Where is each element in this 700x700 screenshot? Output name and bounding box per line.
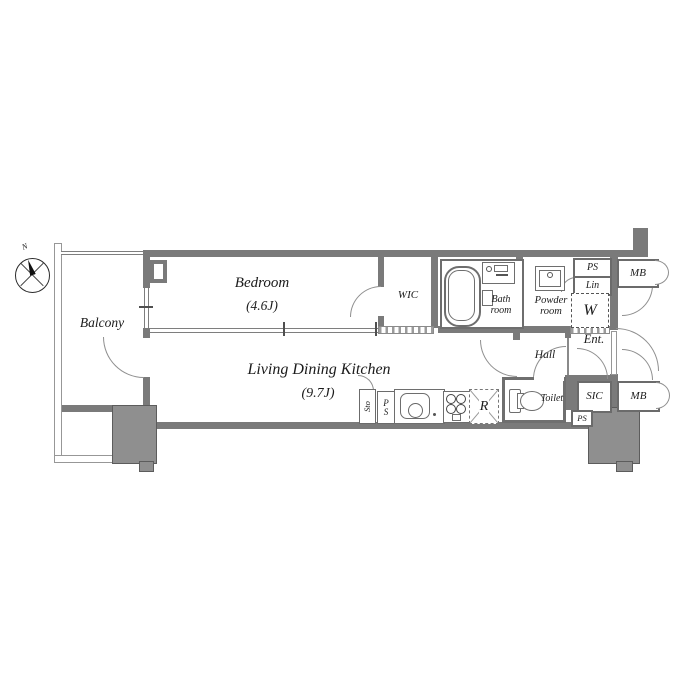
bath-shower-icon — [494, 265, 508, 272]
mb-bottom-door-leaf — [656, 382, 670, 409]
door-arc-ldk-hall — [480, 340, 517, 377]
meter-box-top: MB — [617, 259, 659, 288]
pillar-bottom-right-foot — [616, 461, 633, 472]
balcony-edge-top — [61, 251, 143, 255]
room-label-balcony: Balcony — [62, 316, 142, 331]
washer-label: W — [583, 302, 596, 319]
wall-left-mid — [143, 328, 150, 338]
room-label-powder: Powder room — [526, 295, 576, 318]
mb-bottom-label: MB — [631, 391, 647, 403]
linen-label: Lin — [586, 281, 599, 292]
window-tick — [139, 306, 153, 308]
stove-burner-icon — [446, 404, 456, 414]
shoe-closet: SIC — [577, 381, 612, 413]
bath-faucet-icon — [486, 266, 492, 272]
powder-faucet-icon — [547, 272, 553, 278]
ps-shaft-top: PS — [573, 258, 612, 278]
compass-north-label: N — [17, 241, 33, 254]
floor-plan: N — [0, 0, 700, 700]
stove-grill — [452, 414, 461, 421]
ps-bottom-label: PS — [577, 414, 586, 423]
mb-top-door-leaf — [655, 260, 669, 285]
meter-box-bottom: MB — [617, 381, 660, 412]
room-label-entrance: Ent. — [574, 333, 614, 347]
balcony-divider-wall — [62, 405, 115, 412]
balcony-wall-bottom — [54, 455, 117, 463]
door-arc-sic — [577, 348, 608, 379]
door-arc-mb-top — [622, 285, 653, 316]
room-label-hall: Hall — [525, 349, 565, 361]
wall-left-upper — [143, 250, 150, 288]
pillar-bottom-left — [112, 405, 157, 464]
wall-wic-left-top — [378, 257, 384, 287]
balcony-wall-left — [54, 243, 62, 462]
storage-label: Sto — [363, 401, 372, 412]
pillar-bottom-right — [588, 407, 640, 464]
wall-top-stub — [633, 228, 648, 252]
sliding-partition-bedroom-ldk — [150, 328, 378, 333]
refrigerator-space: R — [469, 389, 499, 424]
partition-tick — [283, 322, 285, 336]
room-label-wic: WIC — [386, 290, 430, 302]
bathtub-inner — [448, 270, 475, 321]
room-size-bedroom: (4.6J) — [192, 299, 332, 314]
wall-left-lower — [143, 377, 150, 406]
step-line-hall-ent — [567, 338, 569, 375]
wall-wic-bath — [431, 257, 438, 328]
compass — [15, 258, 51, 294]
sic-label: SIC — [586, 391, 603, 403]
door-arc-ldk-balcony — [103, 337, 144, 378]
kitchen-ps-shaft: P S — [377, 391, 395, 424]
bath-mixer-icon — [496, 274, 508, 276]
stove-burner-icon — [446, 394, 456, 404]
wall-top — [143, 250, 648, 257]
door-arc-bedroom-wic — [350, 286, 381, 317]
kitchen-ps-s: S — [384, 408, 389, 417]
refrigerator-label: R — [479, 399, 490, 414]
room-label-ldk: Living Dining Kitchen — [219, 361, 419, 378]
room-size-ldk: (9.7J) — [268, 386, 368, 401]
kitchen-faucet-icon — [408, 403, 423, 418]
room-label-toilet: Toilet — [532, 394, 572, 405]
ps-shaft-bottom: PS — [571, 410, 593, 427]
room-label-bedroom: Bedroom — [192, 275, 332, 291]
partition-tick — [375, 322, 377, 336]
mb-top-label: MB — [630, 268, 646, 280]
room-label-bathroom: Bath room — [481, 295, 521, 317]
washer-space: W — [571, 293, 609, 328]
balcony-window — [144, 288, 149, 328]
kitchen-drain-dot — [433, 413, 436, 416]
stove-burner-icon — [456, 394, 466, 404]
threshold-wic — [378, 326, 434, 334]
toilet-door-gap — [534, 376, 564, 381]
ps-top-label: PS — [587, 263, 598, 274]
stove-burner-icon — [456, 404, 466, 414]
column-box — [150, 260, 167, 283]
pillar-bottom-left-foot — [139, 461, 154, 472]
